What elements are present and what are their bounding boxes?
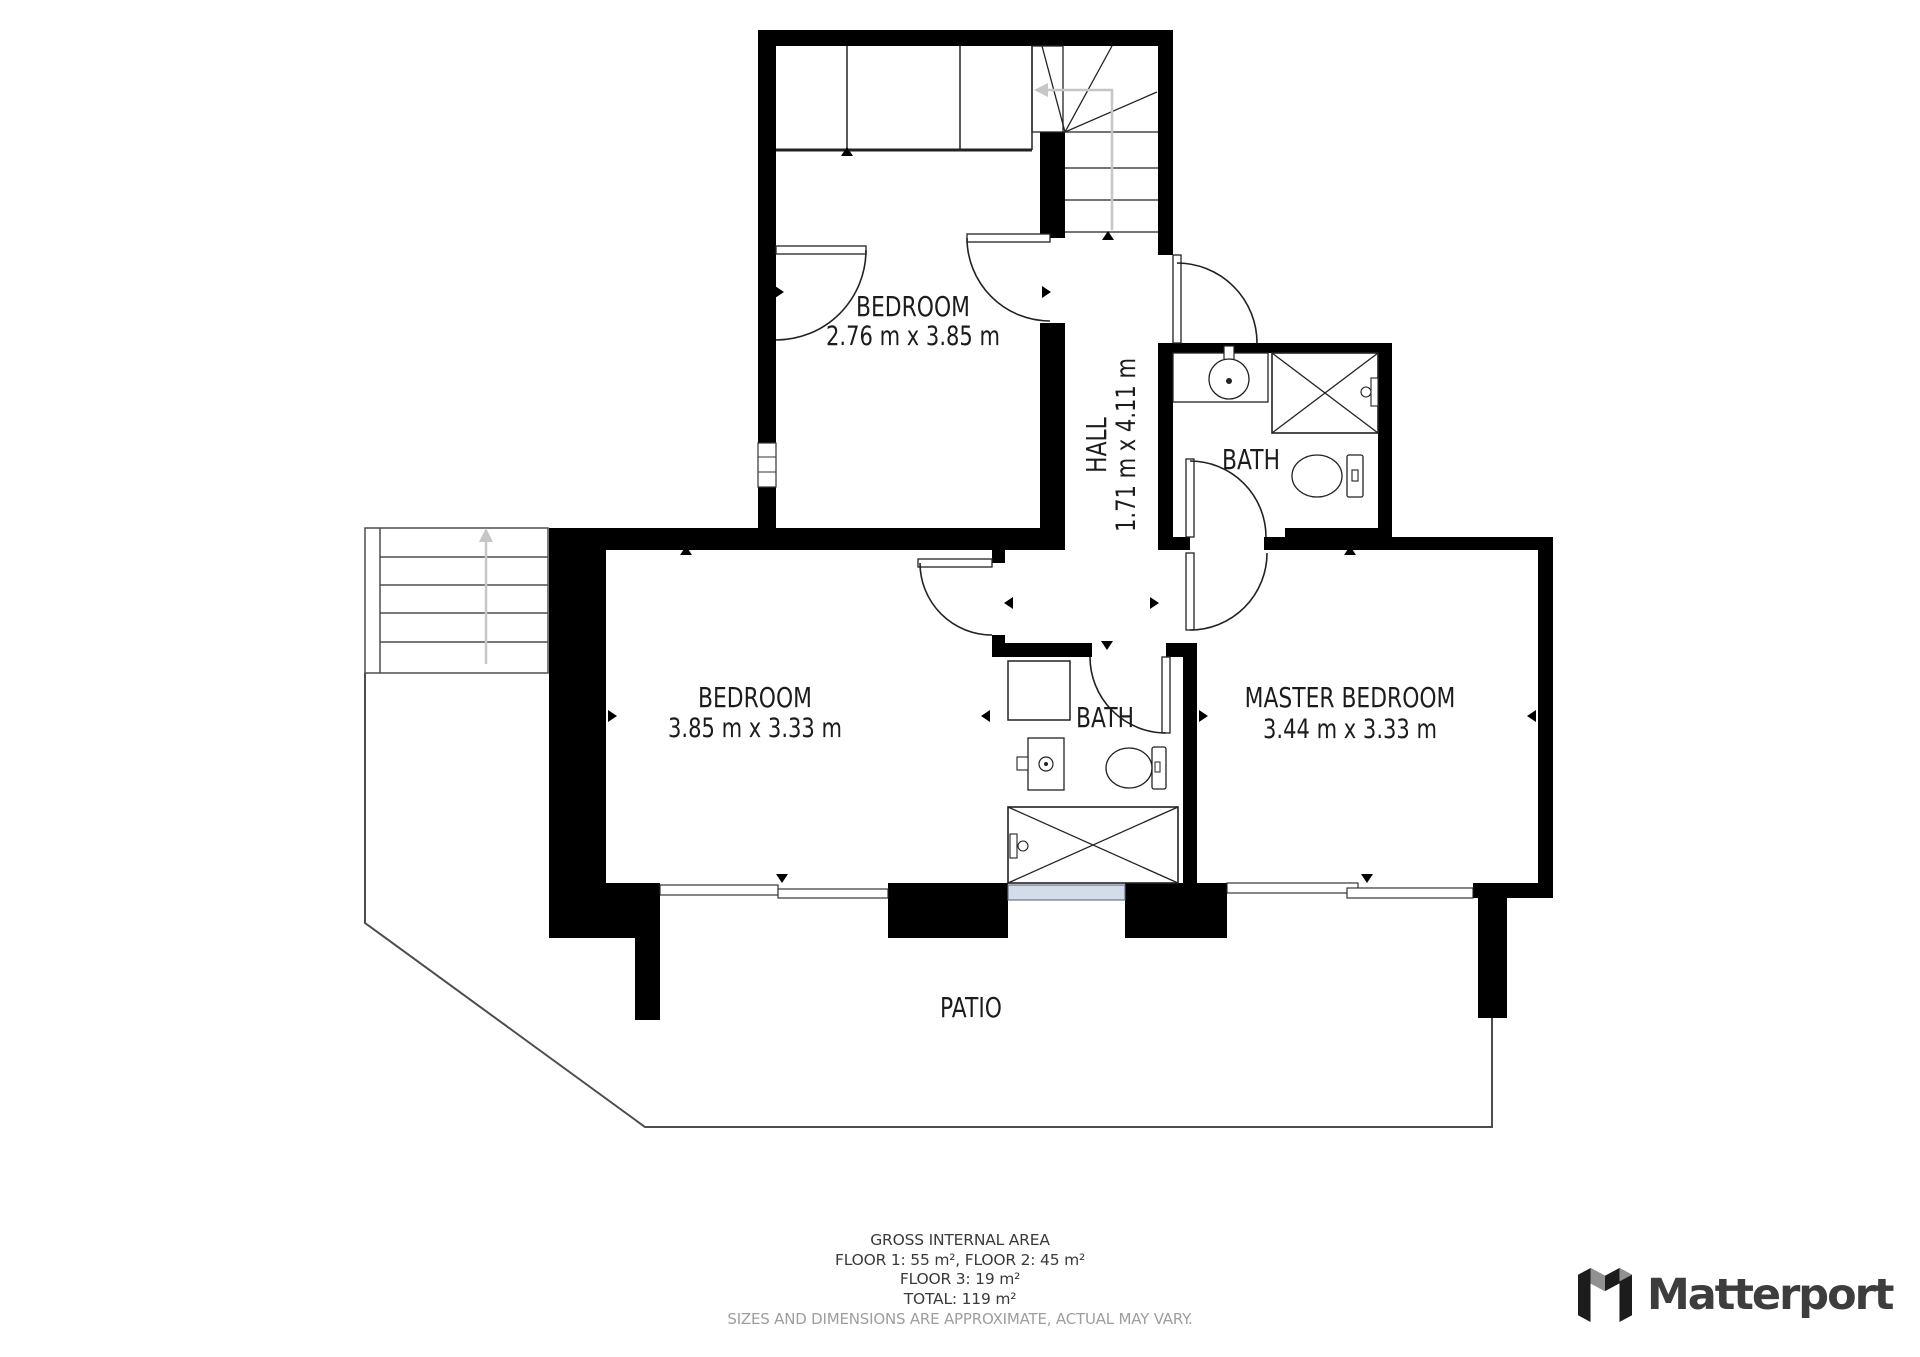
wall bbox=[1125, 883, 1227, 938]
matterport-logo: Matterport bbox=[1576, 1268, 1892, 1322]
wall bbox=[1040, 132, 1065, 238]
opening-marker bbox=[1199, 710, 1208, 722]
shower-icon bbox=[1272, 353, 1378, 433]
opening-marker bbox=[1361, 874, 1373, 883]
wall bbox=[1264, 537, 1553, 550]
cabinet bbox=[1008, 661, 1070, 720]
wall bbox=[992, 635, 1005, 657]
room-dims-master: 3.44 m x 3.33 m bbox=[1263, 713, 1437, 744]
door-bedroom-top-hall bbox=[967, 234, 1050, 321]
wall bbox=[1158, 343, 1173, 550]
wall bbox=[758, 30, 776, 443]
window-bedroom-top bbox=[758, 443, 776, 487]
wall bbox=[758, 30, 1173, 46]
opening-marker bbox=[776, 874, 788, 883]
room-label-bedroom-top: BEDROOM bbox=[856, 290, 970, 322]
opening-markers bbox=[608, 147, 1536, 883]
wall bbox=[549, 528, 606, 885]
toilet-icon bbox=[1292, 455, 1363, 497]
wall bbox=[888, 883, 1008, 938]
footer-title: GROSS INTERNAL AREA bbox=[0, 1231, 1920, 1251]
opening-marker bbox=[1004, 597, 1013, 609]
opening-marker bbox=[1150, 597, 1159, 609]
wall bbox=[992, 550, 1005, 563]
opening-marker bbox=[1101, 641, 1113, 650]
room-label-bath-mid: BATH bbox=[1076, 701, 1134, 733]
wall bbox=[1158, 537, 1190, 550]
wall bbox=[1285, 528, 1392, 537]
door-master-bedroom bbox=[1186, 553, 1267, 630]
room-label-bedroom-mid: BEDROOM bbox=[698, 681, 812, 713]
room-label-hall: HALL bbox=[1080, 417, 1112, 473]
room-dims-bedroom-top: 2.76 m x 3.85 m bbox=[826, 320, 1000, 351]
toilet-icon bbox=[1106, 747, 1166, 789]
wall bbox=[1158, 30, 1173, 255]
wall bbox=[1166, 643, 1197, 657]
room-label-patio: PATIO bbox=[940, 991, 1002, 1023]
room-label-bath-top: BATH bbox=[1222, 443, 1280, 475]
window-bath-mid bbox=[1008, 885, 1125, 900]
wall bbox=[1378, 343, 1392, 550]
walls bbox=[549, 30, 1553, 1020]
room-dims-hall: 1.71 m x 4.11 m bbox=[1110, 358, 1141, 532]
wall bbox=[1158, 343, 1392, 353]
window-slider-bedroom-mid bbox=[660, 885, 888, 898]
opening-marker bbox=[1527, 710, 1536, 722]
wall bbox=[1473, 883, 1553, 898]
matterport-logo-text: Matterport bbox=[1647, 1270, 1892, 1320]
wall bbox=[549, 883, 660, 938]
floorplan-page: BEDROOM 2.76 m x 3.85 m HALL 1.71 m x 4.… bbox=[0, 0, 1920, 1357]
wall bbox=[1183, 657, 1197, 883]
room-dims-bedroom-mid: 3.85 m x 3.33 m bbox=[668, 712, 842, 743]
wall bbox=[635, 938, 660, 1020]
wall bbox=[1478, 898, 1507, 1018]
wall bbox=[1538, 550, 1553, 898]
door-hall-exterior bbox=[1173, 255, 1257, 343]
opening-marker bbox=[608, 710, 617, 722]
opening-marker bbox=[1042, 286, 1051, 298]
windows bbox=[660, 443, 1473, 900]
opening-marker bbox=[981, 710, 990, 722]
shower-icon bbox=[1008, 807, 1178, 883]
wall bbox=[1040, 323, 1065, 550]
bath-mid-fixtures bbox=[1008, 661, 1178, 883]
opening-marker bbox=[775, 286, 784, 298]
wall bbox=[549, 528, 1053, 550]
window-slider-master bbox=[1227, 883, 1473, 898]
door-bedroom-mid bbox=[918, 559, 992, 635]
matterport-logo-icon bbox=[1576, 1268, 1634, 1322]
staircase-exterior bbox=[365, 528, 548, 673]
wall bbox=[1005, 643, 1092, 657]
floorplan: BEDROOM 2.76 m x 3.85 m HALL 1.71 m x 4.… bbox=[0, 0, 1920, 1357]
sink-icon bbox=[1017, 738, 1064, 790]
sink-icon bbox=[1173, 346, 1268, 402]
room-label-master: MASTER BEDROOM bbox=[1245, 681, 1456, 713]
closet-partition bbox=[776, 46, 1032, 150]
